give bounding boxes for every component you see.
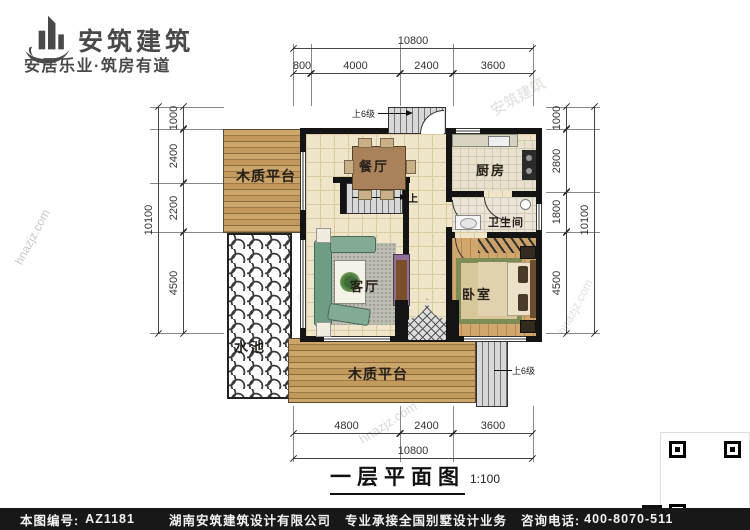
extension-line bbox=[293, 44, 294, 106]
dim-left-seg: 4500 bbox=[183, 232, 184, 333]
annotation-leader bbox=[378, 113, 408, 114]
footer-phone-label: 咨询电话: bbox=[521, 510, 580, 529]
window bbox=[464, 336, 526, 342]
headboard bbox=[530, 260, 536, 318]
footer-company: 湖南安筑建筑设计有限公司 bbox=[169, 510, 331, 529]
dim-right-seg: 4500 bbox=[566, 232, 567, 333]
dim-left-seg: 2400 bbox=[183, 129, 184, 183]
pillow bbox=[518, 294, 528, 311]
extension-line bbox=[150, 107, 224, 108]
extension-line bbox=[150, 333, 224, 334]
annotation-leader bbox=[494, 370, 512, 371]
dim-bottom-seg: 2400 bbox=[400, 433, 453, 434]
toilet bbox=[520, 199, 531, 210]
dim-left-seg: 2200 bbox=[183, 183, 184, 232]
kitchen-sink bbox=[488, 136, 510, 147]
qr-finder bbox=[724, 441, 741, 458]
qr-finder bbox=[669, 441, 686, 458]
footer-phone: 400-8070-511 bbox=[584, 512, 673, 526]
porch-post bbox=[446, 300, 459, 342]
brand-tagline: 安居乐业·筑房有道 bbox=[24, 52, 171, 76]
dining-chair bbox=[358, 190, 372, 200]
window bbox=[300, 152, 306, 210]
window bbox=[324, 336, 390, 342]
annotation-arrowhead bbox=[406, 110, 413, 116]
dim-right-seg: 1800 bbox=[566, 192, 567, 232]
side-table bbox=[316, 322, 331, 337]
dining-chair bbox=[406, 160, 416, 174]
dim-top-seg: 800 bbox=[293, 73, 311, 74]
sofa-top bbox=[330, 236, 376, 253]
stove-burner bbox=[526, 168, 532, 174]
bedroom-label: 卧室 bbox=[462, 284, 492, 303]
dining-chair bbox=[358, 138, 372, 148]
nightstand bbox=[520, 246, 536, 259]
porch-post bbox=[395, 300, 408, 342]
extension-line bbox=[546, 232, 600, 233]
extension-line bbox=[150, 232, 224, 233]
side-steps-label: 上6级 bbox=[512, 364, 535, 377]
dining-chair bbox=[344, 160, 354, 174]
window bbox=[536, 204, 542, 230]
dim-left-total: 10100 bbox=[158, 107, 159, 333]
dim-right-seg: 2800 bbox=[566, 129, 567, 192]
drawing-scale: 1:100 bbox=[470, 472, 500, 486]
watermark-brand: 安筑建筑 bbox=[487, 72, 549, 120]
pillow bbox=[518, 266, 528, 283]
drawing-title: 一层平面图 bbox=[330, 461, 465, 495]
footer-bar: 本图编号: AZ1181 湖南安筑建筑设计有限公司 专业承接全国别墅设计业务 咨… bbox=[0, 508, 750, 530]
stairs-up-label: 上 bbox=[408, 190, 418, 205]
pool bbox=[227, 233, 292, 399]
footer-plan-no: AZ1181 bbox=[85, 512, 135, 526]
extension-line bbox=[533, 44, 534, 106]
nightstand bbox=[520, 320, 536, 333]
stove-burner bbox=[526, 155, 532, 161]
dim-top-total: 10800 bbox=[293, 48, 533, 49]
dining-label: 餐厅 bbox=[359, 156, 389, 175]
dim-top-seg: 4000 bbox=[311, 73, 400, 74]
dining-chair bbox=[380, 190, 394, 200]
window bbox=[300, 240, 306, 328]
floor-plan-sheet: { "brand": {"name": "安筑建筑", "tagline": "… bbox=[0, 0, 750, 530]
dim-right-total: 10100 bbox=[594, 107, 595, 333]
watermark-site: hnazjz.com bbox=[356, 398, 419, 446]
pool-label: 水池 bbox=[234, 337, 266, 357]
deck-top-label: 木质平台 bbox=[236, 166, 296, 186]
dim-bottom-seg: 4800 bbox=[293, 433, 400, 434]
extension-line bbox=[150, 129, 224, 130]
stairs-direction-arrowhead bbox=[400, 194, 407, 200]
extension-line bbox=[546, 192, 600, 193]
dim-top-seg: 3600 bbox=[453, 73, 533, 74]
entry-steps-label: 上6级 bbox=[352, 107, 375, 120]
extension-line bbox=[533, 406, 534, 462]
dim-bottom-seg: 3600 bbox=[453, 433, 533, 434]
extension-line bbox=[453, 44, 454, 106]
extension-line bbox=[400, 44, 401, 106]
deck-bottom-label: 木质平台 bbox=[348, 364, 408, 384]
dining-chair bbox=[380, 138, 394, 148]
dim-bottom-total: 10800 bbox=[293, 458, 533, 459]
side-table bbox=[316, 228, 331, 243]
footer-service: 专业承接全国别墅设计业务 bbox=[345, 510, 507, 529]
bathroom-label: 卫生间 bbox=[488, 214, 524, 230]
living-label: 客厅 bbox=[350, 276, 380, 295]
kitchen-label: 厨房 bbox=[476, 160, 506, 179]
extension-line bbox=[311, 44, 312, 106]
tv-cabinet-inner bbox=[396, 260, 407, 300]
footer-plan-no-label: 本图编号: bbox=[20, 510, 79, 529]
dim-top-seg: 2400 bbox=[400, 73, 453, 74]
watermark-site: hnazjz.com bbox=[12, 207, 53, 267]
bathroom-sink bbox=[460, 218, 477, 229]
extension-line bbox=[150, 183, 224, 184]
side-entry-steps bbox=[476, 338, 508, 407]
